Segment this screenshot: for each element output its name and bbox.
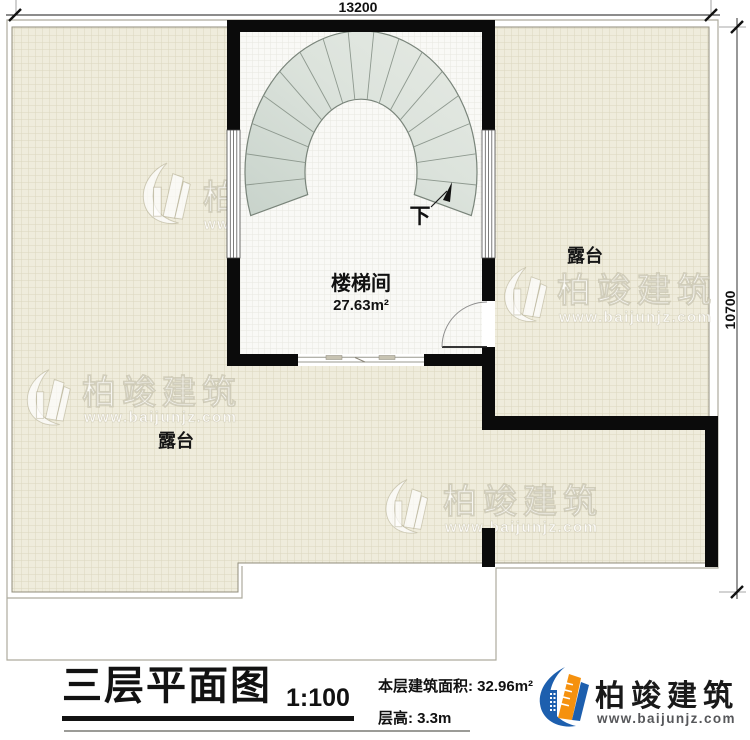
dimension-top: 13200 [6,0,720,21]
watermark-brand-text: 柏竣建筑 [82,373,242,412]
bottom-opening [298,354,424,366]
terrace-right-label: 露台 [567,245,603,266]
terrace-left-label: 露台 [158,430,194,451]
dimension-top-value: 13200 [339,0,378,15]
floor-plan-page: 柏竣建筑 www.baijunjz.com 柏竣建筑 www.baijunjz.… [0,0,750,740]
title-underline [62,716,354,721]
company-logo-name: 柏竣建筑 [595,679,739,713]
floor-plan-drawing: 柏竣建筑 www.baijunjz.com 柏竣建筑 www.baijunjz.… [0,0,750,662]
drawing-title: 三层平面图 [62,662,272,710]
dimension-right-value: 10700 [722,290,738,329]
watermark-site-text: www.baijunjz.com [83,409,237,426]
wall-horizontal-right [487,416,718,430]
wall-top [227,20,495,32]
wall-bottom-left [227,354,298,366]
watermark-brand-text: 柏竣建筑 [443,482,603,521]
wall-bottom-right [424,354,495,366]
wall-right-upper [482,32,495,130]
window-right [482,130,495,258]
title-thinline [64,730,470,732]
down-label: 下 [410,205,431,228]
floor-area-text: 本层建筑面积: 32.96m² [378,679,533,696]
floor-height-text: 层高: 3.3m [378,711,451,728]
company-logo-icon [540,667,589,727]
stairwell-label: 楼梯间 [331,271,391,295]
door-opening [482,301,495,347]
wall-stub [482,528,495,567]
company-logo-website: www.baijunjz.com [596,711,736,726]
company-logo: 柏竣建筑 www.baijunjz.com [531,659,750,739]
dimension-right: 10700 [719,18,746,599]
wall-left-upper [227,32,240,130]
wall-left-lower [227,258,240,354]
wall-right-mid [482,258,495,301]
watermark-site-text: www.baijunjz.com [558,309,712,326]
wall-vertical-right [705,430,718,567]
stairwell-area: 27.63m² [333,297,389,314]
window-left [227,130,240,258]
watermark-site-text: www.baijunjz.com [444,519,598,536]
drawing-scale: 1:100 [286,684,350,713]
watermark-brand-text: 柏竣建筑 [557,271,717,310]
